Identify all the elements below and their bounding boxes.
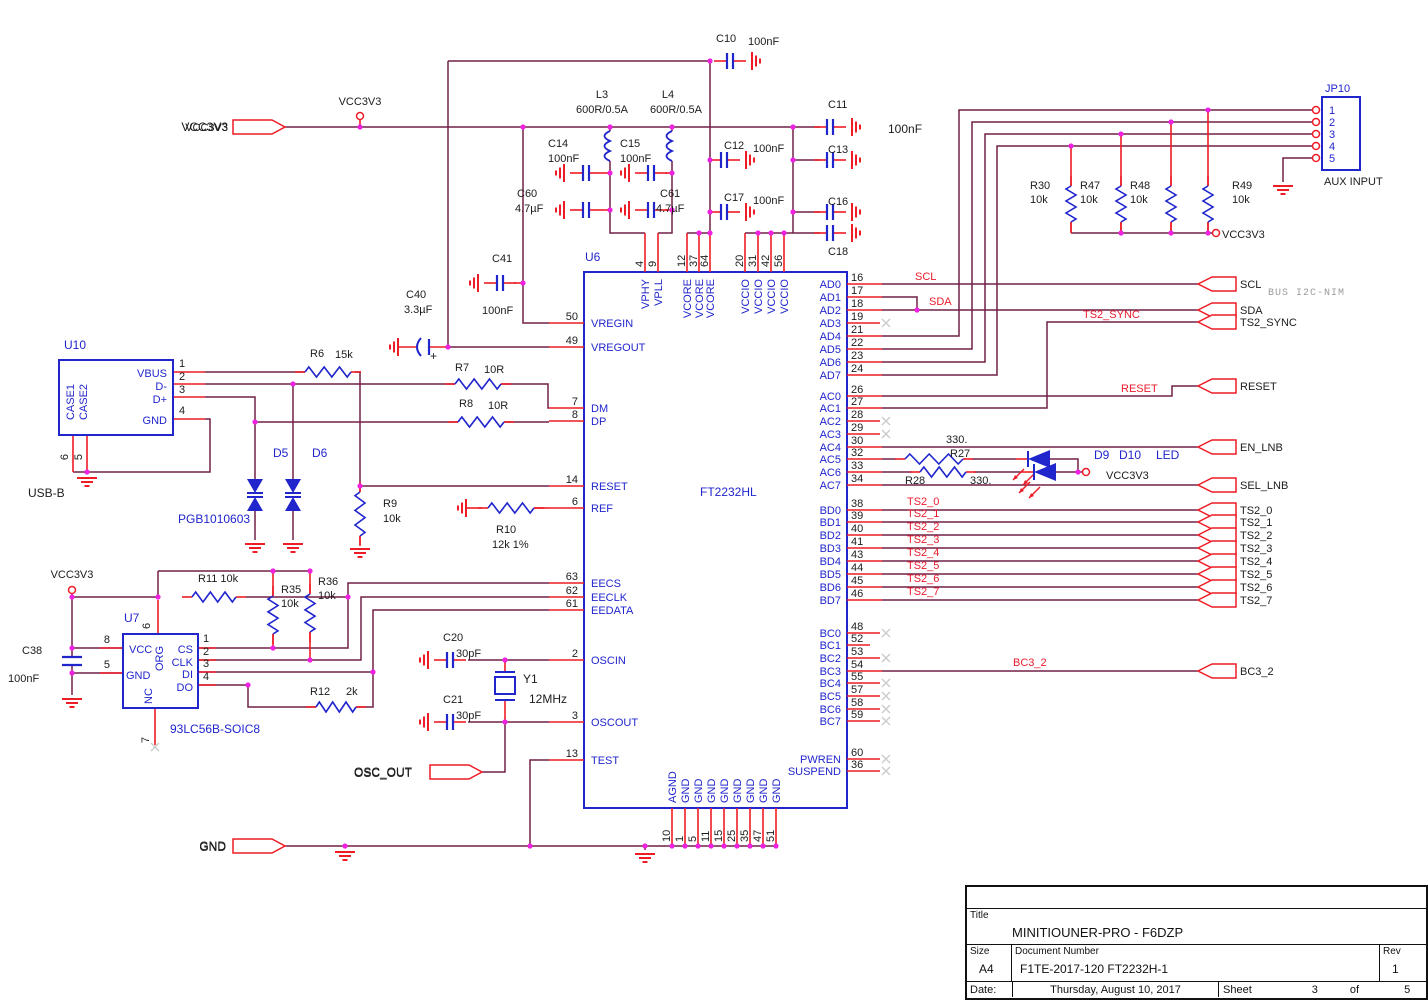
junction-dot xyxy=(445,344,450,349)
pin-number: 26 xyxy=(851,384,863,396)
resistor xyxy=(268,596,278,634)
wire xyxy=(198,685,316,707)
pin-number: 54 xyxy=(851,659,863,671)
junction-dot xyxy=(708,843,713,848)
pin-number: 16 xyxy=(851,272,863,284)
pin-name: GND xyxy=(758,779,770,804)
label: 93LC56B-SOIC8 xyxy=(170,722,260,736)
port-label: TS2_0 xyxy=(1240,505,1272,517)
pin-number: 63 xyxy=(566,571,578,583)
schematic-canvas: SCLSDATS2_SYNCRESETEN_LNBSEL_LNBTS2_0TS2… xyxy=(0,0,1428,1000)
label: D6 xyxy=(312,446,328,460)
junction-dot xyxy=(707,157,712,162)
label: TS2_2 xyxy=(907,521,939,533)
label: 10k xyxy=(1130,194,1148,206)
pin-name: GND xyxy=(771,779,783,804)
resistor xyxy=(192,592,236,602)
label: 10k xyxy=(1080,194,1098,206)
label: 2 xyxy=(179,371,185,383)
schematic-page: SCLSDATS2_SYNCRESETEN_LNBSEL_LNBTS2_0TS2… xyxy=(0,0,1428,1000)
label: C10 xyxy=(716,33,736,45)
label: R28 xyxy=(905,475,925,487)
wire xyxy=(882,297,917,310)
pin-name: VCORE xyxy=(682,279,694,318)
label: 330. xyxy=(946,434,967,446)
label: 4 xyxy=(1329,141,1335,153)
port-GND xyxy=(233,839,285,853)
pin-name: BD4 xyxy=(820,556,841,568)
label: 2 xyxy=(1329,117,1335,129)
pin-name: GND xyxy=(719,779,731,804)
junction-dot xyxy=(747,843,752,848)
pin-number: 64 xyxy=(699,255,711,267)
pin-number: 17 xyxy=(851,285,863,297)
pin-number: 46 xyxy=(851,588,863,600)
pin-name: OSCIN xyxy=(591,655,626,667)
label: C13 xyxy=(828,144,848,156)
port-RESET xyxy=(1198,379,1236,393)
pin-number: 50 xyxy=(566,311,578,323)
pin-number: 5 xyxy=(687,836,699,842)
port-label: EN_LNB xyxy=(1240,442,1283,454)
pin-name: AD0 xyxy=(820,279,841,291)
label: VCC3V3 xyxy=(1222,229,1265,241)
wire xyxy=(882,322,1198,408)
junction-dot xyxy=(520,280,525,285)
pin-name: AC0 xyxy=(820,391,841,403)
label: VCC3V3 xyxy=(339,96,382,108)
polarized-capacitor xyxy=(417,338,421,356)
label: 2k xyxy=(346,686,358,698)
pin-name: AC7 xyxy=(820,480,841,492)
resistor xyxy=(920,467,966,477)
label: 600R/0.5A xyxy=(576,104,629,116)
label: 100nF xyxy=(620,153,651,165)
label: R47 xyxy=(1080,180,1100,192)
pin-number: 40 xyxy=(851,523,863,535)
junction-dot xyxy=(1168,119,1173,124)
pin-name: EECLK xyxy=(591,592,628,604)
pin-number: 25 xyxy=(726,830,738,842)
label: C12 xyxy=(724,140,744,152)
junction-dot xyxy=(357,483,362,488)
junction-dot xyxy=(768,230,773,235)
pin-number: 62 xyxy=(566,585,578,597)
pin-name: VREGIN xyxy=(591,318,633,330)
label: TS2_SYNC xyxy=(1083,309,1140,321)
junction-dot xyxy=(682,843,687,848)
pin-name: DM xyxy=(591,403,608,415)
label: VBUS xyxy=(137,368,167,380)
pin-name: BD3 xyxy=(820,543,841,555)
pin-name: AC2 xyxy=(820,416,841,428)
pin-name: VPHY xyxy=(640,278,652,309)
junction-dot xyxy=(734,843,739,848)
pin-number: 13 xyxy=(566,748,578,760)
label: Y1 xyxy=(523,672,538,686)
junction-dot xyxy=(607,124,612,129)
label: 30pF xyxy=(456,648,481,660)
pin-number: 9 xyxy=(647,261,659,267)
label: C18 xyxy=(828,246,848,258)
pin-name: BC5 xyxy=(820,691,841,703)
label: 100nF xyxy=(8,673,39,685)
label: 100nF xyxy=(548,153,579,165)
pin-number: 23 xyxy=(851,350,863,362)
junction-dot xyxy=(773,843,778,848)
label: SDA xyxy=(929,296,952,308)
pin-number: 2 xyxy=(572,648,578,660)
label: TS2_0 xyxy=(907,496,939,508)
rev-cell: Rev 1 xyxy=(1380,945,1426,981)
pin-number: 29 xyxy=(851,422,863,434)
pin-number: 43 xyxy=(851,549,863,561)
pin-name: GND xyxy=(706,779,718,804)
junction-dot xyxy=(69,594,74,599)
junction-dot xyxy=(721,843,726,848)
inductor xyxy=(605,131,611,161)
label: 100nF xyxy=(888,122,922,136)
pin-name: BC6 xyxy=(820,704,841,716)
label: 8 xyxy=(104,634,110,646)
date-label: Date: xyxy=(967,982,1013,997)
junction-dot xyxy=(755,230,760,235)
resistor xyxy=(316,702,356,712)
port-TS2_7 xyxy=(1198,593,1236,607)
port-label: BC3_2 xyxy=(1240,666,1274,678)
pin-name: AD3 xyxy=(820,318,841,330)
label: R36 xyxy=(318,576,338,588)
label: 10k xyxy=(383,513,401,525)
junction-dot xyxy=(345,594,350,599)
label: CS xyxy=(178,644,193,656)
label: 12MHz xyxy=(529,692,567,706)
label: 10k xyxy=(1030,194,1048,206)
pin-number: 44 xyxy=(851,562,863,574)
label: C38 xyxy=(22,645,42,657)
label: R10 xyxy=(496,524,516,536)
junction-dot xyxy=(270,645,275,650)
pin-name: RESET xyxy=(591,481,628,493)
pin-name: AGND xyxy=(667,771,679,803)
junction-dot xyxy=(527,843,532,848)
label: 7 xyxy=(140,737,152,743)
resistor xyxy=(305,367,351,377)
label: C61 xyxy=(660,188,680,200)
label: 100nF xyxy=(748,36,779,48)
tvs-diode xyxy=(247,479,263,493)
pin-name: AC4 xyxy=(820,442,841,454)
pin-number: 55 xyxy=(851,671,863,683)
label: R7 xyxy=(455,362,469,374)
port-TS2_SYNC xyxy=(1198,315,1236,329)
pin-name: GND xyxy=(732,779,744,804)
label: D- xyxy=(155,381,167,393)
power-circle xyxy=(1213,230,1220,237)
label: BUS I2C-NIM xyxy=(1268,288,1345,299)
label: 100nF xyxy=(482,305,513,317)
label: TS2_7 xyxy=(907,586,939,598)
port-BC3_2 xyxy=(1198,664,1236,678)
label: 1 xyxy=(179,358,185,370)
junction-dot xyxy=(790,124,795,129)
wire xyxy=(482,722,505,772)
label: D+ xyxy=(153,394,167,406)
junction-dot xyxy=(520,124,525,129)
pin-number: 10 xyxy=(661,830,673,842)
label: 10k xyxy=(318,590,336,602)
junction-dot xyxy=(245,682,250,687)
junction-dot xyxy=(695,843,700,848)
pin-number: 31 xyxy=(747,255,759,267)
pin-name: BC0 xyxy=(820,628,841,640)
label: VCC3V3 xyxy=(185,122,228,134)
pin-number: 35 xyxy=(739,830,751,842)
pin-number: 4 xyxy=(634,261,646,267)
port-VCC3V3 xyxy=(233,120,285,134)
label: 4 xyxy=(179,405,185,417)
power-circle xyxy=(69,587,76,594)
pin-name: VCCIO xyxy=(779,279,791,314)
label: R27 xyxy=(950,448,970,460)
sheet-number: 3 xyxy=(1312,984,1318,996)
pin-name: VCCIO xyxy=(753,279,765,314)
label: BC3_2 xyxy=(1013,657,1047,669)
tvs-diode xyxy=(285,479,301,493)
junction-dot xyxy=(1205,230,1210,235)
pin-name: BD1 xyxy=(820,517,841,529)
pin-number: 30 xyxy=(851,435,863,447)
pin-name: VCORE xyxy=(705,279,717,318)
sheet-total: 5 xyxy=(1404,984,1410,996)
pin-number: 7 xyxy=(572,396,578,408)
label: R49 xyxy=(1232,180,1252,192)
pin-name: AD4 xyxy=(820,331,841,343)
label: PGB1010603 xyxy=(178,512,250,526)
port-label: TS2_4 xyxy=(1240,556,1272,568)
port-SCL xyxy=(1198,277,1236,291)
pin-name: AC1 xyxy=(820,403,841,415)
junction-dot xyxy=(270,568,275,573)
junction-dot xyxy=(370,669,375,674)
pin-name: BC2 xyxy=(820,653,841,665)
label: DI xyxy=(182,669,193,681)
label: SCL xyxy=(915,271,936,283)
label: 10R xyxy=(488,400,508,412)
port-TS2_1 xyxy=(1198,515,1236,529)
junction-dot xyxy=(760,843,765,848)
label: R35 xyxy=(281,584,301,596)
pin-number: 8 xyxy=(572,409,578,421)
port-label: TS2_5 xyxy=(1240,569,1272,581)
junction-dot xyxy=(790,209,795,214)
title-block: Title MINITIOUNER-PRO - F6DZP Size A4 Do… xyxy=(965,885,1428,1000)
pin-number: 59 xyxy=(851,709,863,721)
pin-number: 1 xyxy=(674,836,686,842)
size-cell: Size A4 xyxy=(967,945,1012,981)
wire xyxy=(205,397,458,422)
label: 3 xyxy=(203,658,209,670)
label: 2 xyxy=(203,646,209,658)
label: R6 xyxy=(310,348,324,360)
port-EN_LNB xyxy=(1198,440,1236,454)
label: 4.7µF xyxy=(656,203,685,215)
pin-name: EECS xyxy=(591,578,621,590)
pin-number: 52 xyxy=(851,633,863,645)
label: 10R xyxy=(484,364,504,376)
chip-part: FT2232HL xyxy=(700,485,757,499)
size-label: Size xyxy=(970,946,989,957)
date-value: Thursday, August 10, 2017 xyxy=(1013,982,1219,997)
junction-dot xyxy=(502,719,507,724)
label: JP10 xyxy=(1325,83,1350,95)
junction-dot xyxy=(607,207,612,212)
schematic-title: MINITIOUNER-PRO - F6DZP xyxy=(1012,925,1183,940)
tvs-diode xyxy=(247,497,263,511)
label: R12 xyxy=(310,686,330,698)
label: 100nF xyxy=(753,195,784,207)
port-TS2_6 xyxy=(1198,580,1236,594)
label: CASE1 xyxy=(65,384,77,420)
label: 6 xyxy=(59,454,71,460)
wire xyxy=(501,384,549,408)
power-circle xyxy=(1313,155,1320,162)
label: C17 xyxy=(724,192,744,204)
resistor xyxy=(1203,186,1213,222)
pin-number: 22 xyxy=(851,337,863,349)
junction-dot xyxy=(84,469,89,474)
port-label: TS2_7 xyxy=(1240,595,1272,607)
pin-name: BC3 xyxy=(820,666,841,678)
wire xyxy=(530,760,549,846)
junction-dot xyxy=(1118,230,1123,235)
junction-dot xyxy=(781,230,786,235)
pin-number: 21 xyxy=(851,324,863,336)
document-number-label: Document Number xyxy=(1015,946,1099,957)
pin-number: 24 xyxy=(851,363,863,375)
label: GND xyxy=(126,670,151,682)
junction-dot xyxy=(669,843,674,848)
pin-name: AC6 xyxy=(820,467,841,479)
rev-label: Rev xyxy=(1383,946,1401,957)
label: 4.7µF xyxy=(515,203,544,215)
junction-dot xyxy=(69,670,74,675)
wire xyxy=(73,419,210,472)
junction-dot xyxy=(642,843,647,848)
pin-number: 51 xyxy=(765,830,777,842)
label: USB-B xyxy=(28,486,65,500)
label: 5 xyxy=(73,454,85,460)
pin-number: 49 xyxy=(566,335,578,347)
label: C15 xyxy=(620,138,640,150)
wire xyxy=(356,672,373,707)
document-number-value: F1TE-2017-120 FT2232H-1 xyxy=(1020,962,1168,976)
pin-number: 58 xyxy=(851,697,863,709)
power-circle xyxy=(1313,119,1320,126)
label: 12k 1% xyxy=(492,539,529,551)
sheet-cell: Sheet 3 of 5 xyxy=(1219,982,1426,997)
label: L3 xyxy=(596,89,608,101)
junction-dot xyxy=(790,157,795,162)
junction-dot xyxy=(707,230,712,235)
junction-dot xyxy=(707,58,712,63)
pin-number: 20 xyxy=(734,255,746,267)
pin-number: 18 xyxy=(851,298,863,310)
label: VCC3V3 xyxy=(1106,470,1149,482)
label: TS2_6 xyxy=(907,573,939,585)
led-diode xyxy=(1028,450,1050,468)
label: C11 xyxy=(828,99,847,111)
label: 3.3µF xyxy=(404,304,433,316)
label: C21 xyxy=(443,694,463,706)
pin-number: 15 xyxy=(713,830,725,842)
power-circle xyxy=(1313,143,1320,150)
label: C40 xyxy=(406,289,426,301)
junction-dot xyxy=(502,657,507,662)
junction-dot xyxy=(707,209,712,214)
junction-dot xyxy=(1068,143,1073,148)
label: 1 xyxy=(203,633,209,645)
pin-number: 27 xyxy=(851,396,863,408)
pin-number: 33 xyxy=(851,460,863,472)
label: NC xyxy=(143,688,155,704)
port-label: SEL_LNB xyxy=(1240,480,1288,492)
label: VCC3V3 xyxy=(51,569,94,581)
port-label: TS2_6 xyxy=(1240,582,1272,594)
pin-name: SUSPEND xyxy=(788,766,841,778)
pin-name: BC4 xyxy=(820,678,841,690)
pin-name: GND xyxy=(693,779,705,804)
label: C41 xyxy=(492,253,512,265)
label: U7 xyxy=(124,611,140,625)
pin-number: 53 xyxy=(851,646,863,658)
wire xyxy=(523,127,549,323)
resistor xyxy=(1116,186,1126,222)
junction-dot xyxy=(607,170,612,175)
pin-number: 14 xyxy=(566,474,578,486)
pin-number: 32 xyxy=(851,447,863,459)
label: LED xyxy=(1156,448,1180,462)
label: 5 xyxy=(1329,153,1335,165)
size-value: A4 xyxy=(979,962,994,976)
junction-dot xyxy=(357,124,362,129)
pin-number: 38 xyxy=(851,498,863,510)
wire xyxy=(355,372,549,486)
pin-number: 12 xyxy=(676,255,688,267)
junction-dot xyxy=(1168,230,1173,235)
resistor xyxy=(1066,186,1076,222)
port-label: SDA xyxy=(1240,305,1263,317)
port-TS2_4 xyxy=(1198,554,1236,568)
label: D9 xyxy=(1094,448,1110,462)
power-circle xyxy=(1083,469,1090,476)
junction-dot xyxy=(1075,469,1080,474)
pin-number: 47 xyxy=(752,830,764,842)
port-label: SCL xyxy=(1240,279,1261,291)
power-circle xyxy=(1313,131,1320,138)
label: C60 xyxy=(517,188,537,200)
label: TS2_3 xyxy=(907,534,939,546)
junction-dot xyxy=(342,843,347,848)
pin-number: 36 xyxy=(851,759,863,771)
label: C20 xyxy=(443,632,463,644)
label: CASE2 xyxy=(78,384,90,420)
label: R8 xyxy=(459,398,473,410)
pin-number: 11 xyxy=(700,831,712,842)
pin-name: VCCIO xyxy=(740,279,752,314)
label: 330. xyxy=(970,475,991,487)
pin-name: BD7 xyxy=(820,595,841,607)
